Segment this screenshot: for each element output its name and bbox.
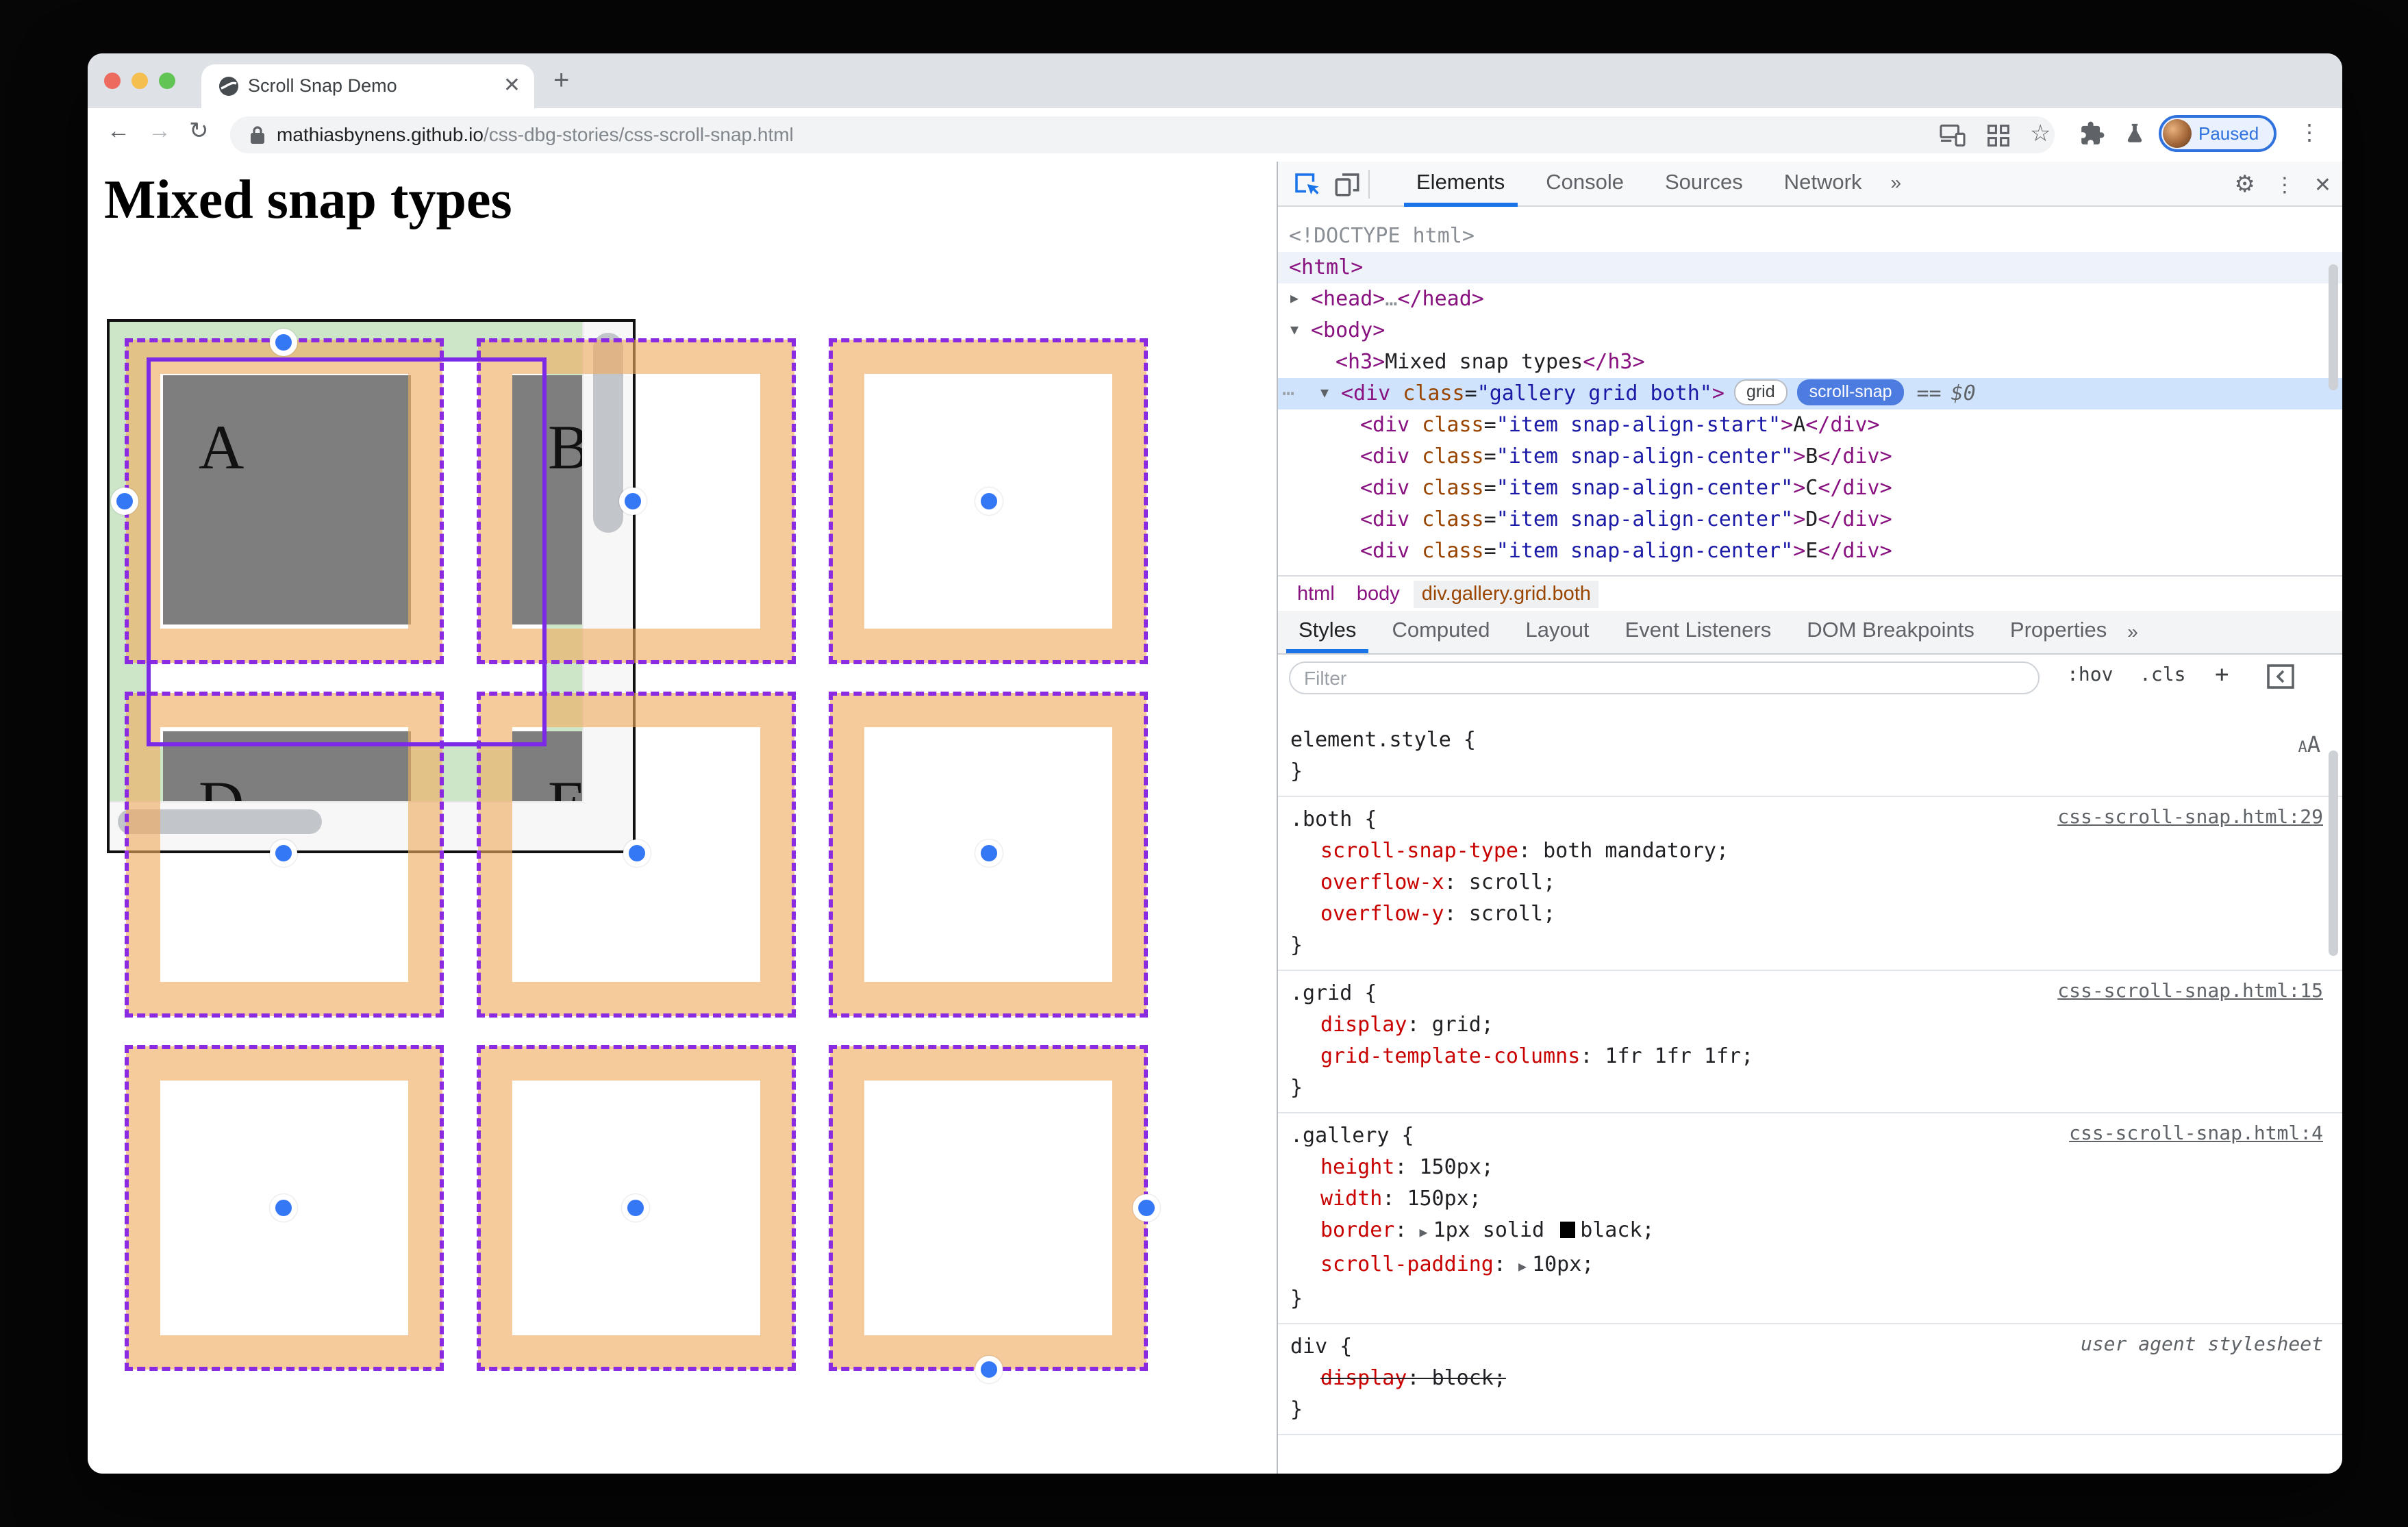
code-token: </div> [1805,412,1879,437]
tab-event-listeners[interactable]: Event Listeners [1607,611,1790,653]
code-token: <head> [1311,286,1385,311]
tab-network[interactable]: Network [1764,162,1883,207]
css-property-width[interactable]: width: 150px; [1278,1183,2342,1215]
code-token: class [1409,475,1483,500]
equals-marker: == [1917,381,1942,405]
property-name[interactable]: width [1320,1186,1382,1211]
dom-line-4[interactable]: ▼<body> [1278,315,2342,346]
css-property-height[interactable]: height: 150px; [1278,1152,2342,1183]
dom-line-code: <div class="item snap-align-center">C</d… [1360,475,1892,500]
menu-kebab-icon[interactable]: ⋮ [2298,119,2320,147]
paused-label: Paused [2198,123,2259,144]
code-token: = [1484,412,1496,437]
code-token: D [1805,507,1818,531]
titlebar: Scroll Snap Demo ✕ + [88,53,2342,108]
code-token: = [1484,538,1496,563]
new-tab-button[interactable]: + [553,66,569,97]
user-agent-label: user agent stylesheet [2081,1334,2323,1356]
code-token: class [1390,381,1464,405]
styles-scrollbar-thumb[interactable] [2329,750,2338,956]
lock-icon [249,125,266,145]
style-rule-grid: .grid {css-scroll-snap.html:15display: g… [1278,971,2342,1113]
toolbar-divider [1368,170,1370,199]
dom-line-code: <div class="item snap-align-center">E</d… [1360,538,1892,563]
css-property-scroll-padding[interactable]: scroll-padding: ▶10px; [1278,1249,2342,1283]
code-token: = [1465,381,1477,405]
code-token: class [1409,538,1483,563]
property-name[interactable]: display [1320,1012,1407,1037]
avatar [2163,119,2192,148]
reload-icon[interactable]: ↻ [189,118,209,145]
code-token: class [1409,412,1483,437]
page-title: Mixed snap types [104,167,512,231]
code-token: <div [1360,444,1409,468]
dollar-zero-marker: $0 [1951,381,1976,405]
code-token: "item snap-align-center" [1496,538,1794,563]
code-token: A [1793,412,1805,437]
extensions-icon[interactable] [2079,121,2105,147]
send-to-device-icon[interactable] [1940,123,1966,147]
dom-line-8[interactable]: <div class="item snap-align-center">B</d… [1278,441,2342,472]
snap-point-dot-7 [975,840,1003,867]
code-token: > [1793,507,1805,531]
snap-point-dot-4 [975,488,1003,515]
property-name[interactable]: overflow-y [1320,901,1444,926]
dom-line-code: <!DOCTYPE html> [1289,223,1475,248]
collapse-arrow-icon[interactable]: ▼ [1290,315,1299,346]
scroll-snap-badge[interactable]: scroll-snap [1797,379,1905,405]
toggle-hover-button[interactable]: :hov [2067,664,2113,686]
code-token: class [1409,507,1483,531]
tab-close-icon[interactable]: ✕ [503,73,521,97]
rule-closing-brace: } [1278,756,2342,787]
tab-sources[interactable]: Sources [1644,162,1764,207]
back-icon[interactable]: ← [107,118,130,145]
css-property-display[interactable]: display: block; [1278,1363,2342,1394]
rule-closing-brace: } [1278,1283,2342,1315]
snap-point-dot-9 [622,1194,649,1222]
devtools-toolbar: ElementsConsoleSourcesNetwork» ⚙ ⋮ ✕ [1278,162,2342,207]
page-viewport: Mixed snap types ABDE [88,162,1277,1474]
code-token: "item snap-align-start" [1496,412,1781,437]
expand-arrow-icon[interactable]: ▶ [1290,283,1299,315]
snap-point-dot-5 [270,840,297,867]
dom-line-7[interactable]: <div class="item snap-align-start">A</di… [1278,409,2342,441]
styles-filter-row: :hov .cls + [1278,655,2342,701]
dom-line-9[interactable]: <div class="item snap-align-center">C</d… [1278,472,2342,504]
snap-point-dot-3 [619,488,647,515]
tab-title: Scroll Snap Demo [248,75,397,96]
code-token: "item snap-align-center" [1496,444,1794,468]
code-token: </h3> [1583,349,1644,374]
styles-rules: element.style {AA}.both {css-scroll-snap… [1278,701,2342,1474]
breadcrumb-item-2[interactable]: body [1349,580,1408,607]
snap-point-dot-8 [270,1194,297,1222]
code-token: Mixed snap types [1385,349,1583,374]
browser-window: Scroll Snap Demo ✕ + ← → ↻ mathiasbynens… [88,53,2342,1474]
dom-line-code: <head>…</head> [1311,286,1484,311]
zoom-button[interactable] [159,73,175,89]
code-token: B [1805,444,1818,468]
code-token: <div [1360,538,1409,563]
minimize-button[interactable] [131,73,148,89]
tab-dom-breakpoints[interactable]: DOM Breakpoints [1789,611,1992,653]
browser-tab[interactable]: Scroll Snap Demo ✕ [201,64,534,108]
code-token: <div [1360,412,1409,437]
property-name[interactable]: scroll-snap-type [1320,838,1518,863]
device-toolbar-icon[interactable] [1333,170,1362,199]
styles-tabbar: StylesComputedLayoutEvent ListenersDOM B… [1278,611,2342,655]
style-rule-div: div {user agent stylesheetdisplay: block… [1278,1324,2342,1435]
css-property-overflow-x[interactable]: overflow-x: scroll; [1278,867,2342,898]
grid-badge[interactable]: grid [1734,379,1788,405]
snapport-overlay-rect [147,357,547,746]
code-token: </div> [1818,475,1892,500]
tab-layout[interactable]: Layout [1507,611,1607,653]
url-text: mathiasbynens.github.io/css-dbg-stories/… [277,123,794,145]
profile-paused-badge[interactable]: Paused [2159,115,2277,152]
dom-line-code: <div class="item snap-align-center">D</d… [1360,507,1892,531]
forward-icon[interactable]: → [148,118,171,145]
tab-styles[interactable]: Styles [1281,611,1374,653]
devtools-panel: ElementsConsoleSourcesNetwork» ⚙ ⋮ ✕ <!D… [1277,162,2342,1474]
code-token: > [1712,381,1725,405]
more-tabs-icon[interactable]: » [1882,162,1909,207]
dom-line-10[interactable]: <div class="item snap-align-center">D</d… [1278,504,2342,535]
url-field[interactable]: mathiasbynens.github.io/css-dbg-stories/… [230,116,2055,153]
snap-point-dot-11 [975,1356,1003,1383]
qr-code-icon[interactable] [1986,123,2011,148]
stylesheet-link[interactable]: css-scroll-snap.html:4 [2069,1123,2323,1145]
toolbar: ← → ↻ mathiasbynens.github.io/css-dbg-st… [88,108,2342,163]
tab-computed[interactable]: Computed [1374,611,1507,653]
stylesheet-link[interactable]: css-scroll-snap.html:15 [2057,981,2323,1002]
dom-tree: <!DOCTYPE html><html>▶<head>…</head>▼<bo… [1278,207,2342,575]
code-token: </div> [1818,507,1892,531]
code-token: </div> [1818,444,1892,468]
collapse-arrow-icon[interactable]: ▼ [1320,378,1329,409]
property-name[interactable]: height [1320,1154,1394,1179]
dom-line-1[interactable]: <!DOCTYPE html> [1278,220,2342,252]
code-token: > [1793,475,1805,500]
expand-shorthand-icon[interactable]: ▶ [1518,1260,1527,1275]
devtools-close-icon[interactable]: ✕ [2314,172,2331,197]
dom-line-code: <div class="gallery grid both"> [1341,381,1725,405]
favicon-icon [218,75,240,97]
code-token: > [1793,444,1805,468]
css-property-scroll-snap-type[interactable]: scroll-snap-type: both mandatory; [1278,835,2342,867]
close-button[interactable] [104,73,121,89]
code-token: … [1385,286,1397,311]
code-token: <h3> [1335,349,1385,374]
snap-point-dot-10 [1133,1194,1160,1222]
css-property-grid-template-columns[interactable]: grid-template-columns: 1fr 1fr 1fr; [1278,1041,2342,1072]
tab-elements[interactable]: Elements [1396,162,1525,207]
dom-line-5[interactable]: <h3>Mixed snap types</h3> [1278,346,2342,378]
code-token: <div [1360,475,1409,500]
rule-closing-brace: } [1278,930,2342,961]
snap-area-overlay-r3c3 [830,1046,1146,1370]
tab-console[interactable]: Console [1525,162,1644,207]
property-name[interactable]: border [1320,1217,1394,1242]
beaker-icon[interactable] [2123,121,2146,147]
css-property-overflow-y[interactable]: overflow-y: scroll; [1278,898,2342,930]
inspect-element-icon[interactable] [1292,170,1320,199]
dom-line-code: <div class="item snap-align-start">A</di… [1360,412,1880,437]
rule-closing-brace: } [1278,1394,2342,1426]
dom-line-code: <div class="item snap-align-center">B</d… [1360,444,1892,468]
dom-scrollbar-thumb[interactable] [2329,264,2338,390]
desktop-background: Scroll Snap Demo ✕ + ← → ↻ mathiasbynens… [0,0,2408,1527]
devtools-tabs: ElementsConsoleSourcesNetwork» [1396,162,1909,207]
styles-more-tabs-icon[interactable]: » [2127,611,2138,653]
code-token: C [1805,475,1818,500]
rule-closing-brace: } [1278,1072,2342,1104]
settings-gear-icon[interactable]: ⚙ [2234,171,2255,198]
property-name[interactable]: overflow-x [1320,870,1444,894]
code-token: <div [1341,381,1390,405]
tab-properties[interactable]: Properties [1992,611,2124,653]
dom-line-3[interactable]: ▶<head>…</head> [1278,283,2342,315]
code-token: <div [1360,507,1409,531]
breadcrumb-item-3[interactable]: div.gallery.grid.both [1414,580,1599,607]
expand-shorthand-icon[interactable]: ▶ [1420,1226,1428,1241]
code-token: = [1484,444,1496,468]
toggle-class-button[interactable]: .cls [2140,664,2185,686]
dom-line-11[interactable]: <div class="item snap-align-center">E</d… [1278,535,2342,567]
style-rule-gallery: .gallery {css-scroll-snap.html:4height: … [1278,1113,2342,1324]
dom-line-2[interactable]: <html> [1278,252,2342,283]
property-name[interactable]: display [1320,1365,1407,1390]
style-rule-elementstyle: element.style {AA} [1278,718,2342,797]
css-property-display[interactable]: display: grid; [1278,1009,2342,1041]
code-token: "item snap-align-center" [1496,507,1794,531]
code-token: "gallery grid both" [1477,381,1712,405]
rule-selector[interactable]: element.style { [1278,724,2342,756]
property-name[interactable]: scroll-padding [1320,1252,1494,1276]
snap-point-dot-1 [270,329,297,356]
code-token: > [1781,412,1793,437]
dom-line-code: <h3>Mixed snap types</h3> [1335,349,1645,374]
code-token: = [1484,507,1496,531]
new-style-rule-button[interactable]: + [2215,661,2229,689]
css-property-border[interactable]: border: ▶1px solid black; [1278,1215,2342,1249]
dom-line-code: <body> [1311,318,1385,342]
devtools-kebab-icon[interactable]: ⋮ [2274,172,2295,197]
breadcrumb: htmlbodydiv.gallery.grid.both [1278,575,2342,611]
code-token: E [1805,538,1818,563]
dom-line-6[interactable]: ⋯▼<div class="gallery grid both">gridscr… [1278,378,2342,409]
code-token: </head> [1397,286,1483,311]
stylesheet-link[interactable]: css-scroll-snap.html:29 [2057,807,2323,829]
breadcrumb-item-1[interactable]: html [1289,580,1343,607]
styles-filter-input[interactable] [1289,661,2040,694]
code-token: <!DOCTYPE html> [1289,223,1475,248]
color-swatch[interactable] [1559,1222,1575,1238]
code-token: class [1409,444,1483,468]
bookmark-star-icon[interactable]: ☆ [2030,121,2051,148]
code-token: <html> [1289,255,1363,279]
overflow-dots-gutter[interactable]: ⋯ [1282,378,1294,409]
snap-point-dot-6 [623,840,651,867]
code-token: <body> [1311,318,1385,342]
code-token: "item snap-align-center" [1496,475,1794,500]
code-token: </div> [1818,538,1892,563]
dock-sidebar-icon[interactable] [2267,664,2294,689]
snap-point-dot-2 [111,488,138,515]
property-name[interactable]: grid-template-columns [1320,1044,1580,1068]
dom-line-code: <html> [1289,255,1363,279]
style-rule-both: .both {css-scroll-snap.html:29scroll-sna… [1278,797,2342,971]
code-token: = [1484,475,1496,500]
font-size-toggle-icon[interactable]: AA [2298,731,2320,757]
code-token: > [1793,538,1805,563]
